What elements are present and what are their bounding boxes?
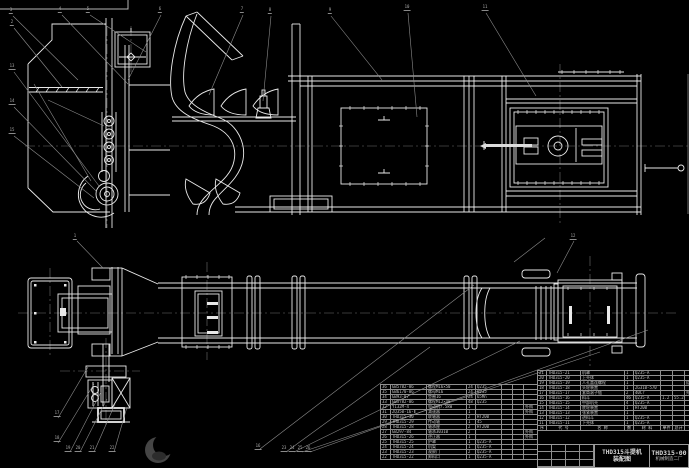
balloon-callout: 12 <box>570 234 577 240</box>
balloon-callout: 24 <box>289 446 296 452</box>
balloon-callout: 13 <box>9 64 16 70</box>
plan-boot-casing <box>78 267 158 356</box>
balloon-callout: 19 <box>65 446 72 452</box>
balloon-callout: 14 <box>9 99 16 105</box>
bom-table-right: 21THD315-21机罩1Q235-A20THD315-20上壳体1Q235-… <box>537 370 689 431</box>
balloon-callout: 5 <box>86 7 90 13</box>
balloon-callout: 2 <box>10 20 14 26</box>
drawing-number: THD315-00 <box>651 449 686 457</box>
balloon-callout: 1 <box>73 234 77 240</box>
bom-header-row: 序代 号名 称数材 料单件总计备注 <box>538 426 689 431</box>
horizontal-duct <box>235 74 688 215</box>
balloon-callout: 9 <box>328 8 332 14</box>
title-product: THD315斗提机 <box>602 449 642 456</box>
balloon-callout: 7 <box>240 7 244 13</box>
balloon-callout: 3 <box>9 8 13 14</box>
balloon-callout: 11 <box>482 5 489 11</box>
balloon-callout: 10 <box>404 5 411 11</box>
balloon-callout: 6 <box>158 7 162 13</box>
balloon-callout: 25 <box>297 446 304 452</box>
title-block: THD315斗提机 装配图 THD315-00 机械制造二厂 <box>537 444 689 468</box>
sheet-frame-corner <box>0 0 128 9</box>
elevation-view <box>28 12 688 228</box>
company-name: 机械制造二厂 <box>656 457 683 463</box>
balloon-callout: 15 <box>9 128 16 134</box>
cad-drawing-canvas[interactable]: 36GB5782-86螺栓M16×5024Q23535GB6170-86螺母M1… <box>0 0 689 468</box>
balloon-callout: 21 <box>89 446 96 452</box>
balloon-callout: 8 <box>268 8 272 14</box>
balloon-callout: 16 <box>255 444 262 450</box>
boot-casing <box>28 18 170 228</box>
balloon-callout: 22 <box>109 446 116 452</box>
drive-station <box>480 70 684 212</box>
signature-grid <box>538 445 594 467</box>
bom-table-left: 36GB5782-86螺栓M16×5024Q23535GB6170-86螺母M1… <box>380 384 538 460</box>
balloon-callout: 20 <box>75 446 82 452</box>
bom-row: 22THD315-22卸料口1Q235-A <box>381 455 538 460</box>
balloon-callout: 18 <box>54 436 61 442</box>
crescent-watermark <box>145 434 175 463</box>
balloon-callout: 17 <box>54 411 61 417</box>
balloon-callout: 26 <box>305 446 312 452</box>
balloon-callout: 23 <box>281 446 288 452</box>
title-subtitle: 装配图 <box>613 456 631 463</box>
balloon-callout: 4 <box>58 7 62 13</box>
